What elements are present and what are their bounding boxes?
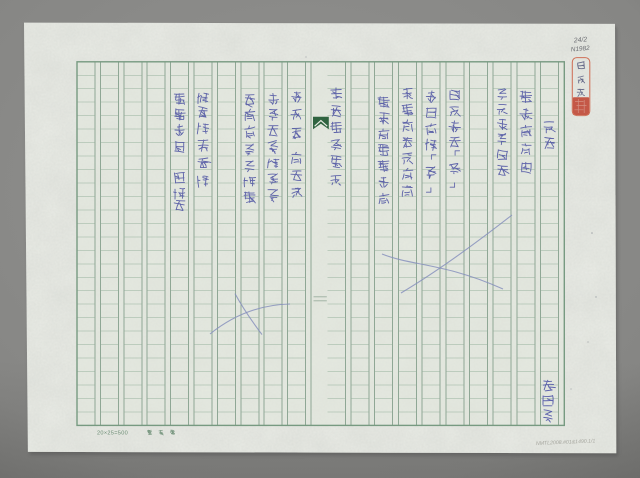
svg-text:24/2: 24/2 — [573, 36, 588, 44]
svg-text:20×25=500: 20×25=500 — [97, 430, 128, 436]
